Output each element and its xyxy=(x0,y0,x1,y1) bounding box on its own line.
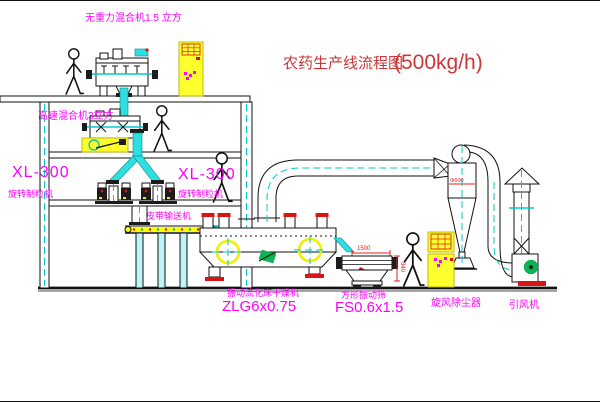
label-belt-conveyor: 皮带输送机 xyxy=(146,210,191,221)
fluid-bed-dryer xyxy=(200,213,354,281)
vibrating-screen xyxy=(336,250,400,288)
mixer-drop-pipe xyxy=(120,88,128,118)
person-figure xyxy=(404,233,424,286)
dryer-top-ports xyxy=(202,213,329,229)
exhaust-stack xyxy=(505,168,539,254)
dimension-screen-height: 340 xyxy=(399,262,405,273)
label-screen-model: FS0.6x1.5 xyxy=(335,299,403,316)
label-cyclone: 旋风除尘器 xyxy=(431,296,481,309)
control-cabinet-bottom xyxy=(428,232,454,287)
dryer-feet xyxy=(205,267,324,281)
fan-base xyxy=(518,281,546,286)
mixer-discharge-pipe xyxy=(133,133,142,156)
mixer-drive-box xyxy=(82,138,128,152)
label-granulator-left-name: 旋转制粒机 xyxy=(8,188,53,199)
person-figure xyxy=(66,49,83,94)
cyclone-outlet-circle xyxy=(452,145,470,163)
label-gravity-free-mixer: 无重力混合机1.5 立方 xyxy=(85,11,182,24)
induced-draft-fan xyxy=(512,254,546,286)
control-cabinet-top xyxy=(179,42,203,96)
dimension-screen-length: 1500 xyxy=(357,246,371,252)
cyclone-collector xyxy=(452,258,474,268)
process-flow-diagram: Φ600 xyxy=(0,0,600,403)
label-dryer-name: 振动流化床干燥机 xyxy=(227,287,299,298)
diagram-title-capacity: (500kg/h) xyxy=(394,51,483,74)
cad-flow-diagram-page: Φ600 xyxy=(0,0,600,403)
label-fan: 引风机 xyxy=(509,298,539,311)
label-high-speed-mixer: 高速混合机3立方 xyxy=(38,109,114,122)
diagram-title: 农药生产线流程图 xyxy=(283,55,403,72)
person-figure xyxy=(154,106,171,151)
label-granulator-right-model: XL-300 xyxy=(178,166,236,183)
duct-dryer-to-cyclone xyxy=(254,158,450,222)
label-granulator-right-name: 旋转制粒机 xyxy=(178,188,223,199)
label-granulator-left-model: XL-300 xyxy=(12,164,70,181)
label-dryer-model: ZLG6x0.75 xyxy=(222,298,296,315)
dryer-discharge-chute xyxy=(334,238,354,252)
y-split-chute xyxy=(106,156,164,184)
conveyor-supports xyxy=(136,233,187,288)
